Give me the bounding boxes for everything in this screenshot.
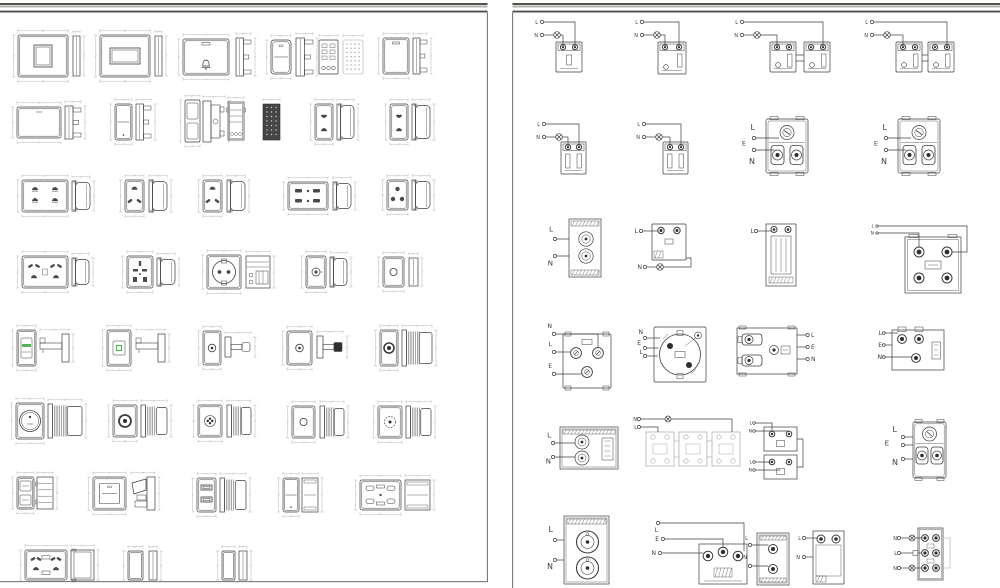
svg-text:N: N	[638, 264, 643, 271]
cad-block-plateXlr	[374, 324, 438, 372]
cad-block-plateBlank	[11, 100, 87, 144]
svg-text:N: N	[749, 429, 752, 435]
cad-block-darkGrid	[263, 98, 280, 140]
svg-text:N: N	[634, 33, 638, 39]
sheet-borders	[0, 3, 1000, 588]
wiring-diagram-swLampDown: LN	[635, 224, 691, 271]
svg-text:L: L	[635, 228, 639, 235]
wiring-diagram-sw2: LN	[734, 20, 830, 72]
svg-text:L: L	[549, 341, 553, 348]
svg-text:L: L	[535, 20, 538, 26]
wiring-diagram-sw1: LN	[536, 122, 586, 174]
wiring-diagram-schukoB: NEL	[637, 327, 706, 382]
wiring-diagram-xlr2b: LN	[547, 516, 609, 584]
svg-text:N: N	[548, 323, 553, 330]
svg-text:E: E	[878, 342, 882, 349]
cad-block-socketUni	[121, 250, 181, 294]
cad-block-socket3	[197, 174, 251, 218]
svg-text:E: E	[655, 536, 659, 543]
cad-block-switchV	[109, 98, 157, 146]
wiring-diagram-modLEN: LEN	[878, 327, 945, 370]
svg-text:L: L	[634, 425, 637, 431]
svg-text:L: L	[735, 20, 738, 26]
svg-text:N: N	[811, 356, 816, 363]
wiring-diagram-sockBack: LEN	[742, 117, 808, 176]
cad-block-socket2	[384, 98, 436, 146]
cad-block-plateSq	[12, 29, 86, 83]
wiring-diagram-pairMod: LNLN	[743, 531, 844, 585]
svg-text:N: N	[633, 417, 637, 423]
svg-text:E: E	[874, 139, 878, 147]
svg-text:N: N	[652, 550, 657, 557]
cad-block-switch2V	[179, 94, 231, 148]
wiring-diagram-multi6: NLN	[893, 528, 950, 580]
cad-block-plateTv	[300, 250, 353, 294]
svg-text:E: E	[637, 340, 641, 347]
svg-text:N: N	[743, 555, 747, 561]
cad-block-plateRing	[281, 325, 349, 371]
cad-block-rocker	[265, 32, 319, 80]
svg-text:L: L	[547, 432, 551, 440]
svg-text:N: N	[749, 157, 755, 166]
svg-text:N: N	[639, 329, 644, 336]
svg-text:L: L	[879, 330, 883, 337]
cad-block-socket4W	[16, 174, 96, 218]
wiring-diagram-xlr2: LN	[548, 219, 601, 277]
wiring-diagram-wideMod2: LN	[546, 427, 618, 469]
svg-text:N: N	[878, 354, 883, 361]
svg-text:N: N	[892, 458, 898, 467]
cad-block-socket6	[354, 474, 436, 516]
svg-text:L: L	[637, 122, 640, 128]
svg-text:N: N	[881, 157, 887, 166]
cad-block-socketMulti2	[19, 544, 100, 581]
wiring-diagram-sockBack2: LEN	[885, 420, 946, 481]
svg-text:L: L	[537, 122, 540, 128]
wiring-diagram-sw2: LN	[864, 20, 954, 72]
cad-block-socketMulti	[16, 250, 95, 294]
svg-text:L: L	[811, 332, 815, 339]
cad-block-plateDotted	[372, 400, 437, 444]
svg-text:L: L	[883, 123, 888, 132]
svg-text:N: N	[548, 260, 553, 268]
svg-text:N: N	[534, 33, 538, 39]
wiring-diagram-sockBack: LEN	[874, 117, 940, 176]
wiring-diagram-sw1: LN	[534, 20, 582, 72]
cad-block-connGrid	[319, 34, 338, 74]
right-sheet: LNLNLNLNLNLNLENLENLNLNLLNNLENELLENLENLNN…	[534, 20, 967, 585]
cad-block-plateFlower	[192, 399, 257, 443]
svg-text:N: N	[636, 135, 640, 141]
cad-block-socket3R	[381, 174, 436, 216]
svg-text:E: E	[811, 344, 815, 351]
cad-block-plateBell	[177, 32, 257, 81]
svg-text:L: L	[749, 421, 752, 427]
cad-block-switch1gLg	[87, 471, 161, 516]
svg-text:N: N	[871, 231, 874, 237]
wiring-diagram-mod3t: LEN	[652, 521, 748, 584]
cad-block-switchV	[277, 472, 324, 518]
svg-text:L: L	[549, 226, 553, 234]
cad-block-relayMod	[227, 96, 246, 140]
cad-block-plateDash	[377, 32, 433, 80]
wiring-diagram-chain3: NL	[633, 416, 740, 466]
svg-text:L: L	[745, 536, 748, 542]
cad-block-plateCir	[377, 251, 424, 293]
svg-text:N: N	[547, 562, 553, 571]
left-sheet	[10, 29, 438, 581]
cad-block-switch2seg	[11, 471, 59, 515]
cad-block-socket3	[119, 174, 173, 218]
cad-block-keypadDots	[343, 34, 363, 74]
svg-text:N: N	[893, 536, 897, 542]
cad-block-plateRect	[94, 29, 168, 83]
svg-text:L: L	[893, 425, 898, 434]
cad-block-blankV	[122, 545, 163, 580]
svg-text:L: L	[798, 536, 801, 542]
wiring-diagram-wideModR: LEN	[737, 326, 816, 376]
svg-text:N: N	[546, 458, 551, 466]
svg-text:E: E	[742, 139, 746, 147]
svg-text:L: L	[635, 20, 638, 26]
cad-block-schuko	[201, 249, 276, 295]
cad-block-ledSwitch	[11, 324, 75, 372]
svg-text:L: L	[749, 460, 752, 466]
svg-text:L: L	[549, 525, 554, 534]
cad-sheet-canvas: LNLNLNLNLNLNLENLENLNLNLLNNLENELLENLENLNN…	[0, 0, 1000, 588]
svg-text:L: L	[871, 224, 874, 230]
wiring-diagram-sw1: LN	[636, 122, 688, 174]
svg-text:L: L	[751, 228, 755, 235]
svg-text:N: N	[893, 566, 897, 572]
svg-text:L: L	[865, 20, 868, 26]
svg-text:L: L	[655, 527, 659, 534]
cad-drawing: LNLNLNLNLNLNLENLENLNLNLLNNLENELLENLENLNN…	[0, 0, 1000, 588]
cad-block-sqSwitch	[101, 324, 171, 372]
svg-text:N: N	[734, 33, 738, 39]
cad-block-usb2	[191, 472, 252, 518]
wiring-diagram-stack2: LNLN	[749, 421, 803, 479]
svg-text:L: L	[894, 551, 897, 557]
cad-block-socket4S	[282, 176, 357, 216]
svg-text:L: L	[751, 123, 756, 132]
svg-text:N: N	[864, 33, 868, 39]
cad-block-plateRing	[197, 325, 257, 371]
wiring-diagram-tb4: LN	[871, 224, 967, 293]
cad-block-knobBig	[10, 397, 88, 445]
cad-block-socket2	[309, 98, 360, 146]
wiring-diagram-p3sq: NLE	[548, 323, 612, 390]
cad-block-plateCir	[286, 400, 350, 444]
svg-text:E: E	[548, 363, 552, 370]
cad-block-plateDotD	[107, 399, 173, 443]
svg-text:N: N	[796, 555, 800, 561]
wiring-diagram-tmod: L	[751, 224, 796, 286]
svg-text:N: N	[749, 468, 752, 474]
cad-block-blankV	[216, 545, 253, 580]
svg-text:N: N	[536, 135, 540, 141]
wiring-diagram-sw1: LN	[634, 20, 686, 74]
svg-text:E: E	[885, 440, 889, 448]
svg-text:L: L	[640, 349, 644, 356]
